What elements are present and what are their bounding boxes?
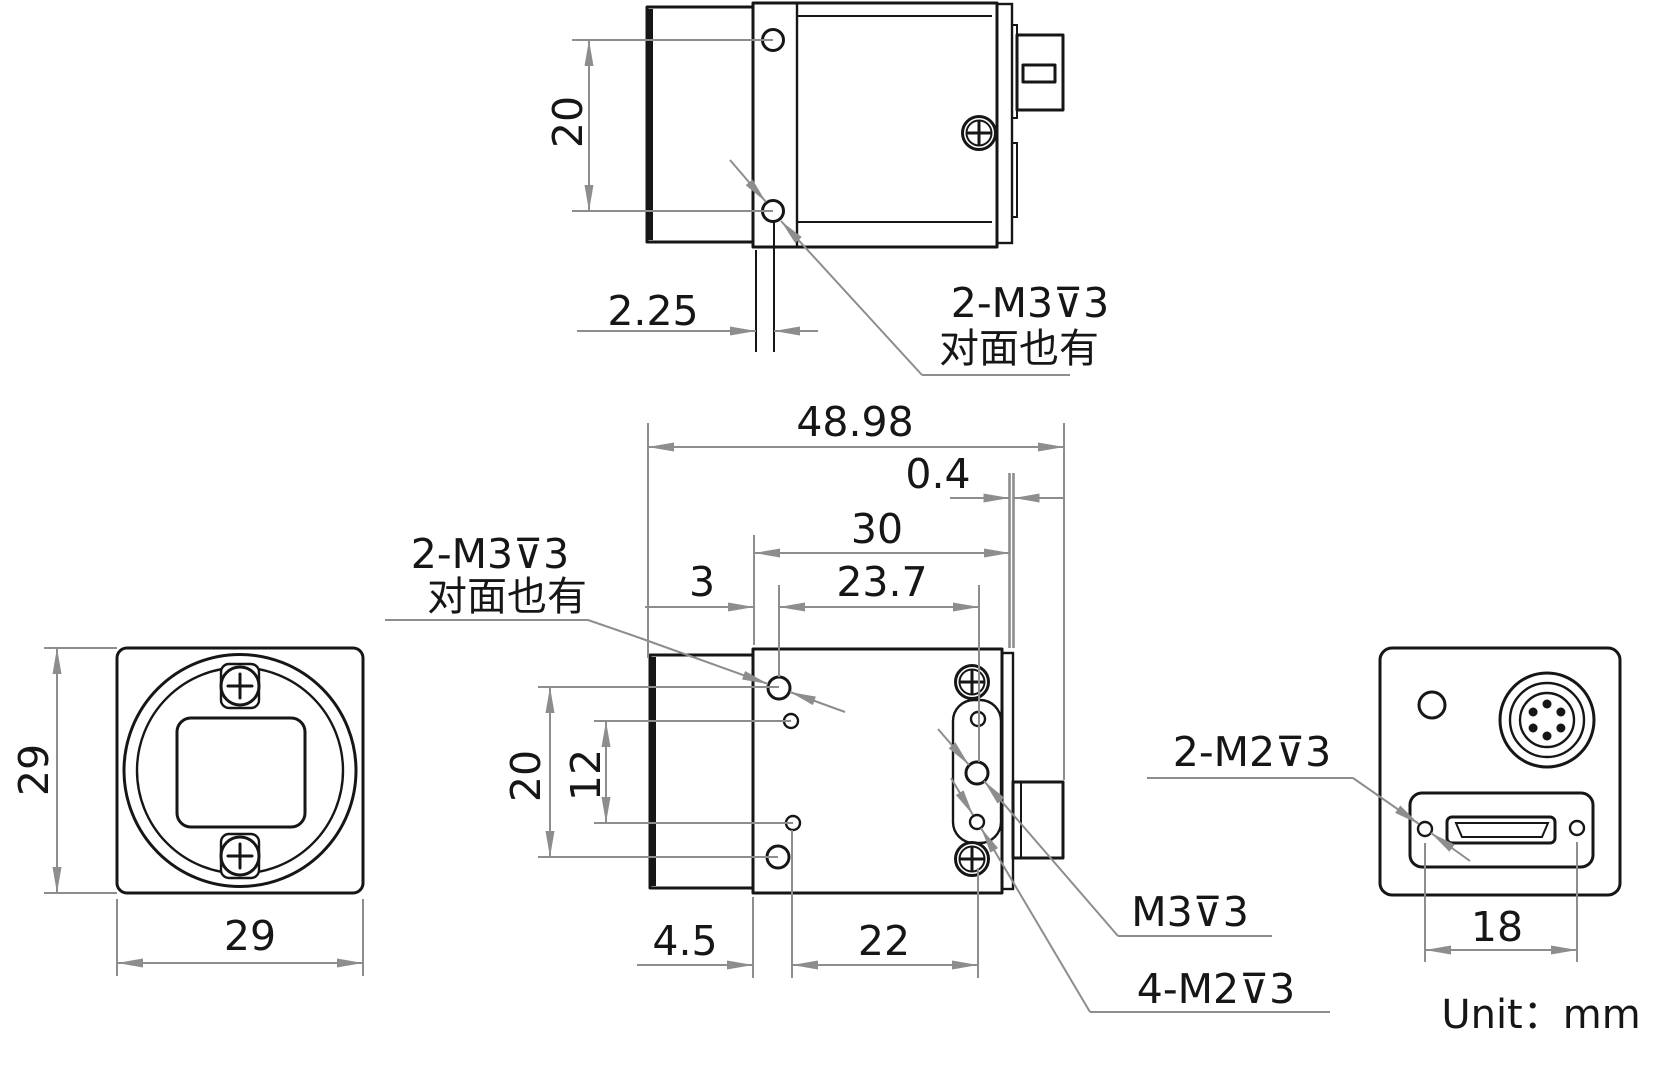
side-dim-bottom-offset: 4.5 bbox=[652, 917, 717, 965]
rear-data-connector-inner bbox=[1456, 823, 1548, 837]
top-rear-plate bbox=[997, 4, 1012, 243]
side-dim-bottom-span: 22 bbox=[858, 917, 910, 965]
top-thread-label-line2: 对面也有 bbox=[939, 326, 1099, 372]
side-thread-label-line2: 对面也有 bbox=[427, 574, 587, 620]
top-dim-hole-offset: 2.25 bbox=[607, 287, 698, 335]
rear-m2-hole-right bbox=[1570, 821, 1584, 835]
drawing-canvas: 20 2.25 2-M3⊽3 对面也有 bbox=[0, 0, 1662, 1066]
rear-led-indicator bbox=[1419, 692, 1445, 718]
side-rear-plate bbox=[1002, 653, 1013, 889]
side-rear-aux-thread-label: 4-M2⊽3 bbox=[1137, 965, 1295, 1013]
side-rear-center-thread-label: M3⊽3 bbox=[1131, 888, 1249, 936]
rear-io-panel bbox=[1410, 793, 1593, 867]
side-lens-barrel bbox=[650, 655, 753, 888]
side-view: 48.98 0.4 30 3 23.7 20 12 4.5 22 bbox=[385, 398, 1330, 1013]
rear-circular-connector bbox=[1500, 673, 1594, 767]
front-screw-top-icon bbox=[221, 664, 259, 708]
side-dim-body-length: 30 bbox=[851, 505, 903, 553]
side-screw-top-icon bbox=[956, 666, 989, 699]
side-dim-hole-span: 23.7 bbox=[836, 558, 927, 606]
top-dim-hole-spacing: 20 bbox=[544, 96, 592, 148]
unit-note: Unit：mm bbox=[1441, 992, 1640, 1038]
side-dim-aux-hole-spacing: 12 bbox=[562, 749, 610, 801]
front-screw-bottom-icon bbox=[221, 834, 259, 878]
top-connector-keyway bbox=[1023, 65, 1055, 82]
rear-dim-hole-spacing: 18 bbox=[1471, 903, 1523, 951]
front-dim-width: 29 bbox=[224, 912, 276, 960]
camera-dimension-drawing: 20 2.25 2-M3⊽3 对面也有 bbox=[0, 0, 1662, 1066]
top-lens-barrel bbox=[647, 7, 753, 242]
side-thread-label-line1: 2-M3⊽3 bbox=[411, 530, 569, 578]
rear-data-connector bbox=[1447, 817, 1555, 843]
rear-panel-thread-label: 2-M2⊽3 bbox=[1173, 728, 1331, 776]
front-dim-height: 29 bbox=[10, 744, 58, 796]
side-dim-mount-hole-spacing: 20 bbox=[502, 750, 550, 802]
top-thread-label-line1: 2-M3⊽3 bbox=[951, 279, 1109, 327]
side-screw-bottom-icon bbox=[956, 843, 989, 876]
top-screw-icon bbox=[963, 117, 996, 150]
top-view: 20 2.25 2-M3⊽3 对面也有 bbox=[544, 3, 1109, 375]
rear-m2-hole-left bbox=[1418, 822, 1432, 836]
side-dim-front-hole-offset: 3 bbox=[689, 558, 715, 606]
rear-body-outline bbox=[1380, 648, 1620, 895]
side-rear-m2-hole-bottom bbox=[970, 815, 984, 829]
front-sensor-window bbox=[177, 718, 305, 827]
top-body-outline bbox=[753, 3, 997, 247]
side-dim-rear-gap: 0.4 bbox=[905, 450, 970, 498]
side-dim-total-length: 48.98 bbox=[796, 398, 913, 446]
front-view: 29 29 bbox=[10, 648, 363, 976]
